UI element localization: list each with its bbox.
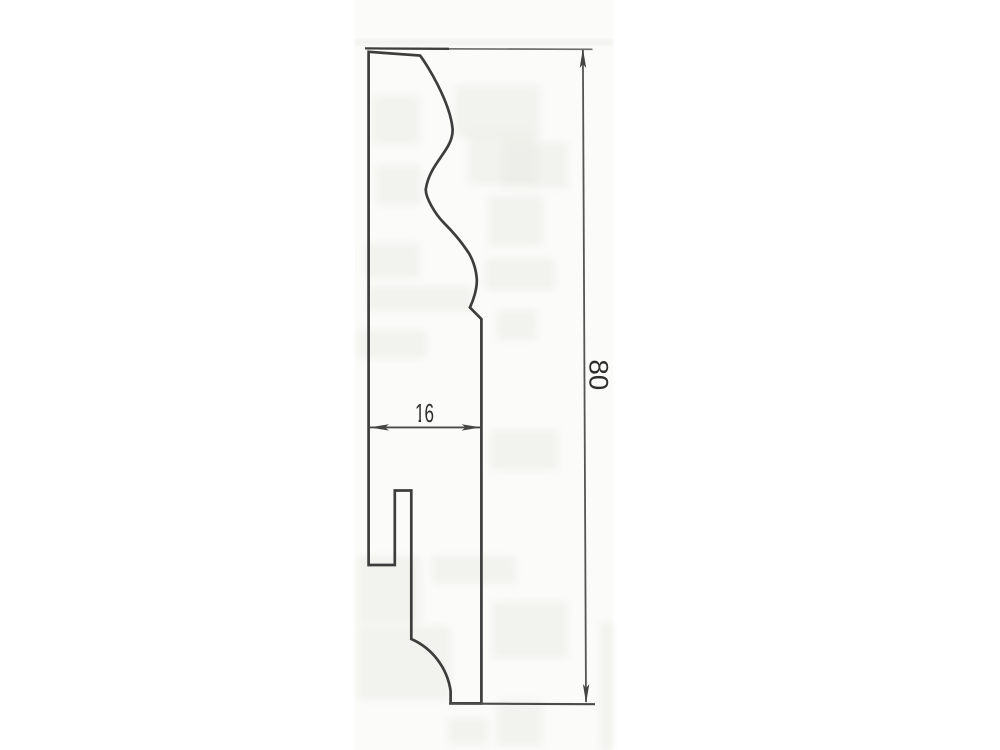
- svg-text:16: 16: [415, 398, 434, 428]
- svg-text:80: 80: [584, 359, 614, 390]
